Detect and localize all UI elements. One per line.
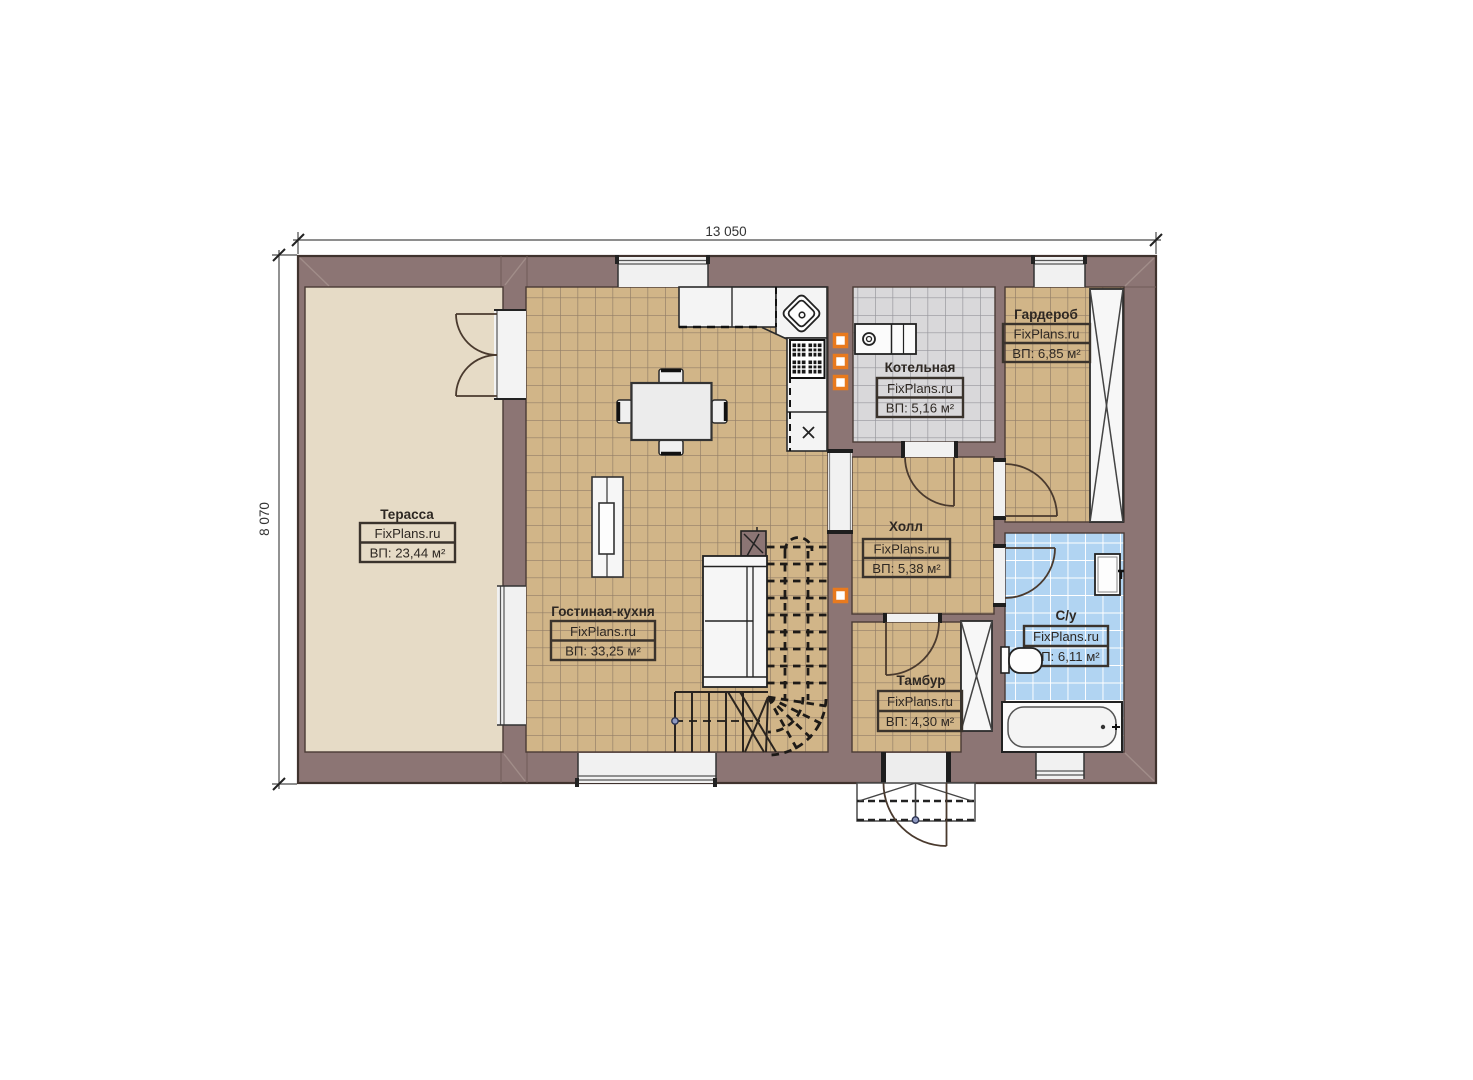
svg-text:Терасса: Терасса [380,507,434,522]
svg-text:ВП: 33,25 м²: ВП: 33,25 м² [565,644,641,659]
svg-text:ВП: 5,16 м²: ВП: 5,16 м² [886,401,955,416]
svg-text:FixPlans.ru: FixPlans.ru [887,381,953,396]
svg-text:FixPlans.ru: FixPlans.ru [887,694,953,709]
svg-text:13 050: 13 050 [705,224,746,239]
svg-text:ВП: 6,85 м²: ВП: 6,85 м² [1012,346,1081,361]
svg-text:FixPlans.ru: FixPlans.ru [874,542,940,557]
svg-text:Гостиная-кухня: Гостиная-кухня [551,604,654,619]
svg-text:Гардероб: Гардероб [1014,307,1078,322]
svg-text:FixPlans.ru: FixPlans.ru [375,526,441,541]
svg-text:Котельная: Котельная [885,360,956,375]
svg-text:FixPlans.ru: FixPlans.ru [1033,629,1099,644]
svg-text:FixPlans.ru: FixPlans.ru [1014,327,1080,342]
svg-text:С/у: С/у [1055,608,1077,623]
svg-text:Тамбур: Тамбур [897,673,946,688]
svg-text:8 070: 8 070 [257,502,272,536]
svg-text:Холл: Холл [889,519,923,534]
svg-text:FixPlans.ru: FixPlans.ru [570,624,636,639]
svg-text:ВП: 4,30 м²: ВП: 4,30 м² [886,714,955,729]
svg-text:ВП: 23,44 м²: ВП: 23,44 м² [370,546,446,561]
svg-text:ВП: 5,38 м²: ВП: 5,38 м² [872,561,941,576]
